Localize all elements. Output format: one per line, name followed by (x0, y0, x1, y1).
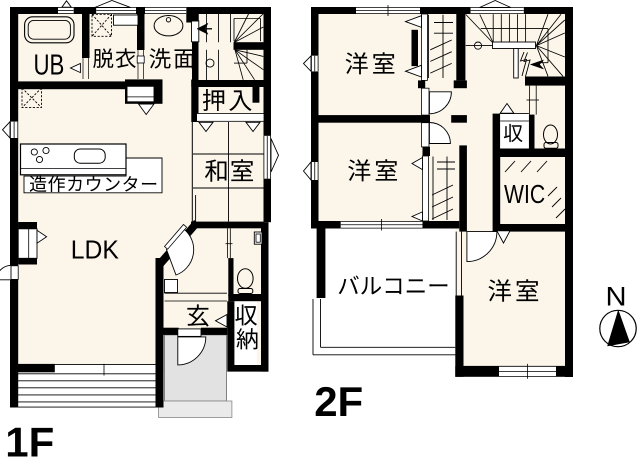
svg-text:WIC: WIC (504, 180, 545, 208)
svg-text:LDK: LDK (71, 236, 119, 265)
svg-text:2F: 2F (314, 378, 363, 425)
svg-text:UB: UB (33, 50, 64, 81)
svg-text:1F: 1F (5, 418, 54, 463)
svg-text:N: N (605, 281, 626, 311)
